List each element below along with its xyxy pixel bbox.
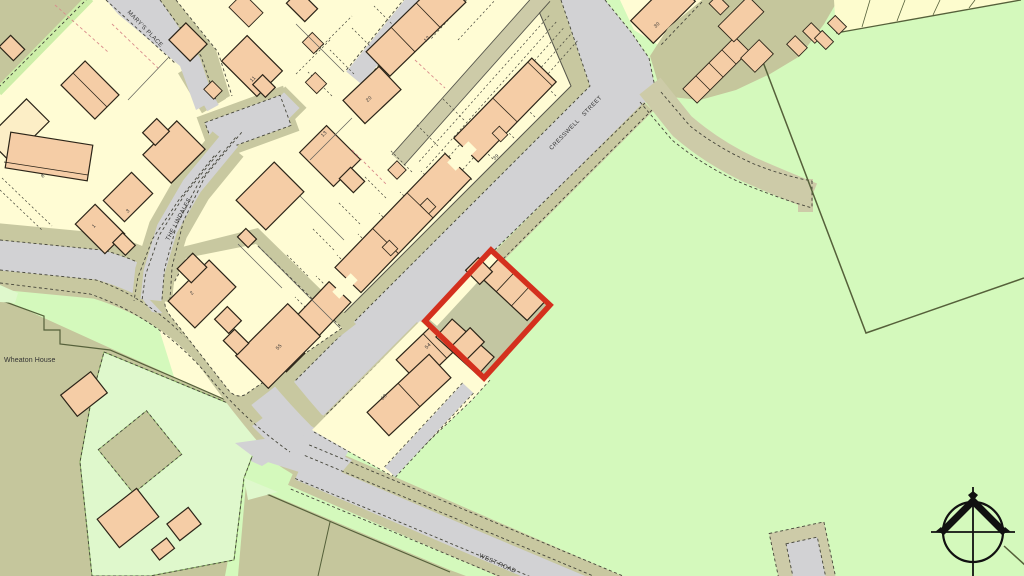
svg-text:Wheaton House: Wheaton House bbox=[4, 357, 56, 364]
